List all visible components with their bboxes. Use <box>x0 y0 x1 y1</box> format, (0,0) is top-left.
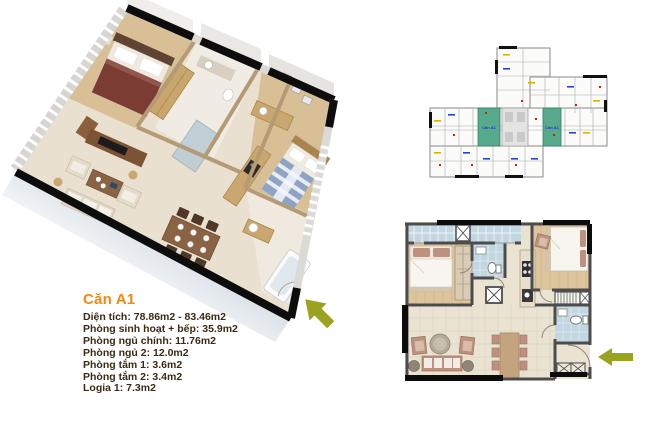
highlighted-unit-a1-left: Căn A1 <box>478 108 500 146</box>
bathroom-1 <box>472 243 505 278</box>
unit-spec-line-master-bedroom: Phòng ngủ chính: 11.76m2 <box>83 336 313 348</box>
unit-spec-line-logia: Logia 1: 7.3m2 <box>83 383 313 395</box>
wing-bottom <box>430 146 543 177</box>
bed-1-2d <box>410 246 452 291</box>
sofa-set-2d <box>409 334 475 372</box>
bathroom-2 <box>555 305 590 343</box>
unit-info-panel: Căn A1 Diện tích: 78.86m2 - 83.46m2 Phòn… <box>83 291 313 395</box>
shaft-box <box>456 225 470 241</box>
unit-spec-line-bedroom-2: Phòng ngủ 2: 12.0m2 <box>83 348 313 360</box>
floor-plan-2d <box>400 217 640 407</box>
wardrobe-2d <box>455 246 472 300</box>
page-canvas: Căn A1 Căn A1 <box>0 0 660 440</box>
highlighted-unit-a1-right: Căn A1 <box>543 108 561 146</box>
stool-3d <box>129 171 138 180</box>
unit-title: Căn A1 <box>83 291 313 308</box>
master-wardrobe-hatch <box>555 292 590 304</box>
entrance-arrow-icon <box>598 348 633 366</box>
building-floor-overview: Căn A1 Căn A1 <box>425 42 615 184</box>
wall-se-black <box>329 100 334 127</box>
elevator-core <box>502 108 528 146</box>
unit-a1-label: Căn A1 <box>482 125 496 130</box>
shaft-box <box>486 287 502 303</box>
unit-spec-line-bathroom-1: Phòng tắm 1: 3.6m2 <box>83 360 313 372</box>
unit-a1-label: Căn A1 <box>545 125 559 130</box>
stool-3d <box>54 178 63 187</box>
